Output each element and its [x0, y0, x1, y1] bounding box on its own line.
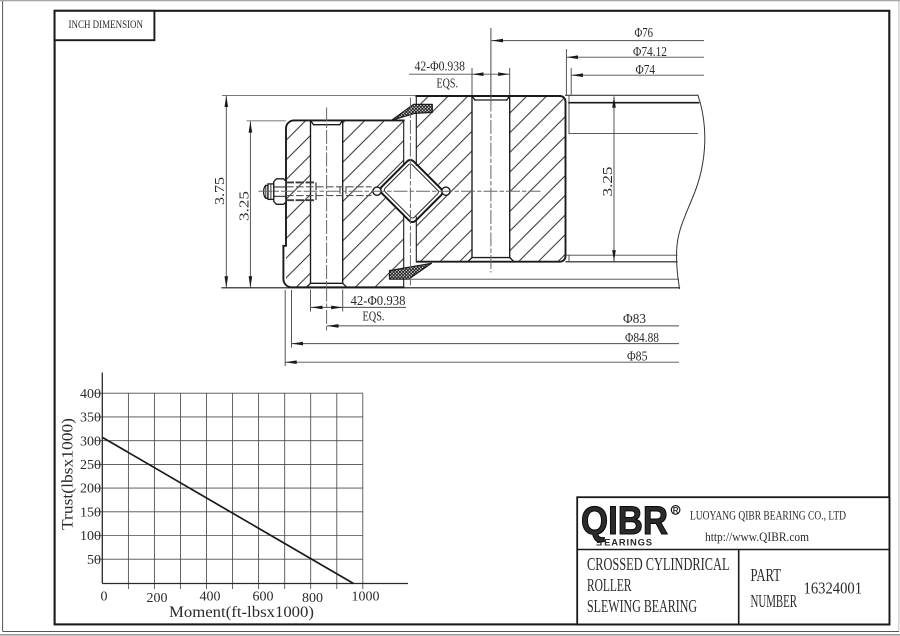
svg-text:400: 400: [80, 387, 101, 402]
svg-text:SLEWING BEARING: SLEWING BEARING: [587, 596, 697, 616]
svg-text:EQS.: EQS.: [437, 77, 459, 92]
svg-text:R: R: [673, 506, 679, 515]
svg-text:50: 50: [87, 553, 101, 568]
svg-text:3.25: 3.25: [601, 167, 616, 197]
svg-text:CROSSED CYLINDRICAL: CROSSED CYLINDRICAL: [587, 554, 730, 574]
svg-text:200: 200: [80, 482, 101, 497]
svg-text:E: E: [596, 537, 602, 548]
svg-text:http://www.QIBR.com: http://www.QIBR.com: [705, 529, 809, 544]
svg-text:EARINGS: EARINGS: [604, 537, 652, 548]
svg-text:42-Φ0.938: 42-Φ0.938: [351, 294, 406, 309]
svg-text:Φ83: Φ83: [623, 312, 646, 327]
svg-text:350: 350: [80, 411, 101, 426]
svg-text:200: 200: [147, 591, 168, 606]
svg-text:Φ84.88: Φ84.88: [625, 331, 659, 346]
svg-text:Φ74.12: Φ74.12: [633, 45, 667, 60]
svg-text:150: 150: [80, 505, 101, 520]
svg-text:250: 250: [80, 458, 101, 473]
svg-text:1000: 1000: [352, 590, 380, 605]
svg-text:ROLLER: ROLLER: [587, 575, 632, 595]
svg-text:0: 0: [101, 590, 108, 605]
svg-text:Trust(lbsx1000): Trust(lbsx1000): [60, 418, 77, 530]
svg-text:LUOYANG QIBR BEARING CO., LTD: LUOYANG QIBR BEARING CO., LTD: [690, 507, 846, 522]
svg-text:NUMBER: NUMBER: [751, 591, 798, 611]
svg-text:400: 400: [200, 590, 221, 605]
svg-text:Moment(ft-lbsx1000): Moment(ft-lbsx1000): [169, 604, 314, 621]
svg-text:300: 300: [80, 434, 101, 449]
svg-text:3.75: 3.75: [213, 177, 228, 205]
svg-text:600: 600: [253, 590, 274, 605]
svg-text:Φ85: Φ85: [627, 350, 648, 365]
svg-text:Φ76: Φ76: [635, 26, 654, 41]
svg-text:INCH DIMENSION: INCH DIMENSION: [69, 19, 144, 31]
svg-text:42-Φ0.938: 42-Φ0.938: [415, 60, 466, 75]
svg-text:16324001: 16324001: [804, 578, 863, 597]
svg-text:100: 100: [80, 529, 101, 544]
svg-text:PART: PART: [751, 565, 782, 585]
svg-text:3.25: 3.25: [237, 191, 252, 221]
svg-text:Φ74: Φ74: [636, 63, 656, 78]
svg-text:EQS.: EQS.: [363, 310, 385, 325]
